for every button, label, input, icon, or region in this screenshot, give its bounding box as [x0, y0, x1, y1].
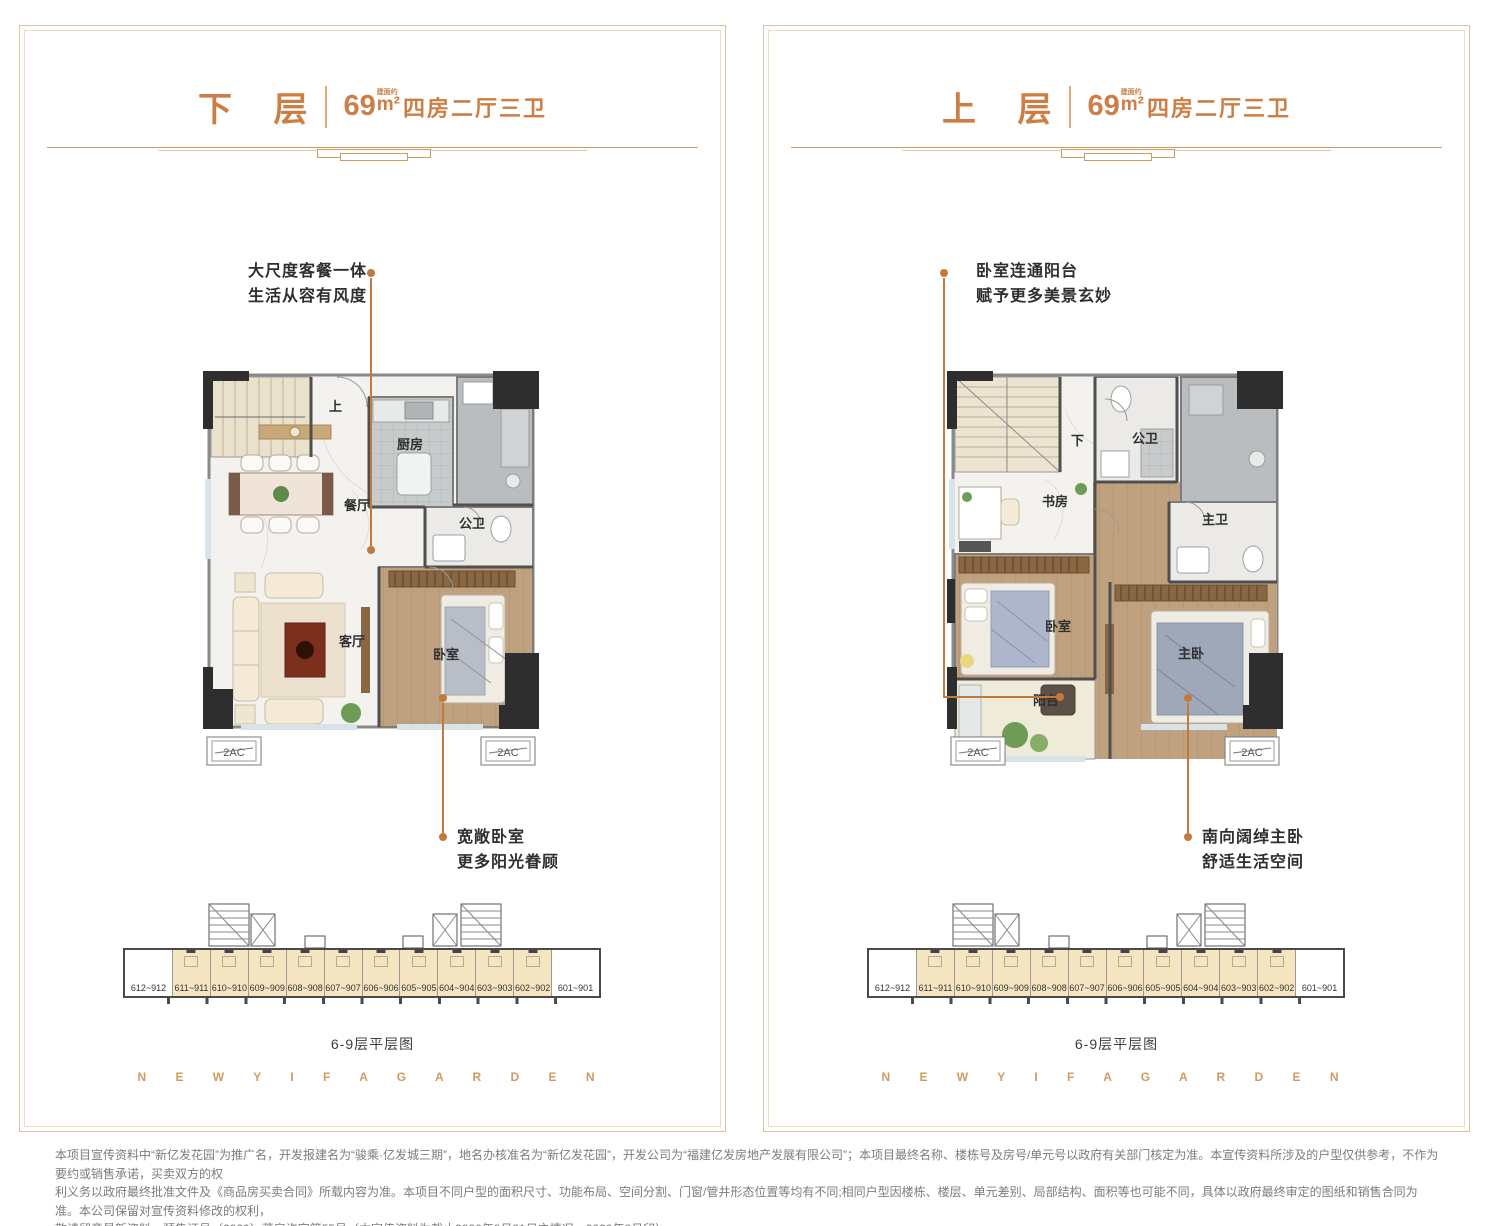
annotation-dining: 大尺度客餐一体 生活从容有风度	[248, 259, 367, 309]
unit-cell: 612~912	[125, 950, 172, 996]
annotation-dot	[439, 694, 447, 702]
unit-cell: 610~910	[954, 950, 992, 996]
header-divider	[325, 86, 327, 128]
unit-spec: 69 建面约m² 四房二厅三卫	[343, 90, 547, 123]
panel-header: 下 层 69 建面约m² 四房二厅三卫	[20, 82, 725, 131]
unit-cell: 603~903	[1219, 950, 1257, 996]
unit-cell: 609~909	[992, 950, 1030, 996]
unit-cell: 604~904	[437, 950, 475, 996]
disclaimer-line: 本项目宣传资料中“新亿发花园”为推广名，开发报建名为“骏乘·亿发城三期”，地名办…	[55, 1146, 1440, 1183]
ac-unit: 2AC	[1225, 737, 1279, 765]
room-label-master-bath: 主卫	[1202, 512, 1228, 527]
unit-cell: 606~906	[362, 950, 400, 996]
unit-spec: 69 建面约m² 四房二厅三卫	[1087, 90, 1291, 123]
ac-unit: 2AC	[481, 737, 535, 765]
unit-cell: 603~903	[475, 950, 513, 996]
unit-bar: 612~912 611~911 610~910 609~909 608~908 …	[867, 948, 1345, 998]
annotation-line	[370, 278, 372, 546]
annotation-master: 南向阔绰主卧 舒适生活空间	[1202, 825, 1304, 875]
unit-cell: 606~906	[1106, 950, 1144, 996]
layout-spec: 四房二厅三卫	[403, 91, 547, 123]
bedroom	[955, 554, 1095, 679]
upper-bath	[1095, 377, 1177, 482]
panel-lower-floor: 下 层 69 建面约m² 四房二厅三卫 大尺度客餐一体 生活从容有风度 宽敞卧室…	[19, 25, 726, 1132]
annotation-dot	[1056, 693, 1064, 701]
roof-bump	[1147, 936, 1167, 948]
annotation-dot	[1184, 833, 1192, 841]
unit-cell: 607~907	[324, 950, 362, 996]
brand-footer: N E W Y I F A G A R D E N	[20, 1070, 725, 1084]
unit-bar: 612~912 611~911 610~910 609~909 608~908 …	[123, 948, 601, 998]
ornamental-divider	[791, 147, 1442, 161]
roof-bump	[403, 936, 423, 948]
kitchen	[369, 397, 453, 507]
unit-cell: 602~902	[1257, 950, 1295, 996]
area-unit: 建面约m²	[377, 94, 400, 116]
annotation-line	[943, 696, 1057, 698]
ornamental-divider	[47, 147, 698, 161]
stair-tower	[953, 904, 1019, 946]
layout-spec: 四房二厅三卫	[1147, 91, 1291, 123]
disclaimer-line: 利义务以政府最终批准文件及《商品房买卖合同》所载内容为准。本项目不同户型的面积尺…	[55, 1183, 1440, 1220]
floorplan-sheet: 下 层 69 建面约m² 四房二厅三卫 大尺度客餐一体 生活从容有风度 宽敞卧室…	[0, 0, 1487, 1226]
plant	[1075, 483, 1087, 495]
room-label-bedroom: 卧室	[1045, 619, 1071, 634]
strip-caption: 6-9层平层图	[764, 1034, 1469, 1054]
unit-cell: 608~908	[286, 950, 324, 996]
disclaimer-line: 敬请留意最新资料。预售证号（2020）莆房许字第55号（本宣传资料为截止2020…	[55, 1220, 1440, 1226]
svg-text:2AC: 2AC	[967, 747, 988, 759]
stair-tower	[209, 904, 275, 946]
unit-cell: 608~908	[1030, 950, 1068, 996]
room-label-living: 客厅	[339, 634, 365, 649]
legal-disclaimer: 本项目宣传资料中“新亿发花园”为推广名，开发报建名为“骏乘·亿发城三期”，地名办…	[55, 1146, 1440, 1226]
svg-text:2AC: 2AC	[497, 747, 518, 759]
unit-cell: 612~912	[869, 950, 916, 996]
room-label-stair: 上	[329, 399, 342, 414]
annotation-balcony: 卧室连通阳台 赋予更多美景玄妙	[976, 259, 1112, 309]
unit-cell: 611~911	[172, 950, 210, 996]
room-label-bath: 公卫	[1132, 431, 1158, 446]
annotation-dot	[367, 269, 375, 277]
strip-caption: 6-9层平层图	[20, 1034, 725, 1054]
staircase	[211, 377, 311, 457]
unit-cell: 611~911	[916, 950, 954, 996]
unit-cell: 610~910	[210, 950, 248, 996]
room-label-dining: 餐厅	[343, 498, 370, 513]
floorplan-upper: 2AC 2AC 下 公卫 书房 主卫 卧室 主卧 阳台	[945, 369, 1285, 769]
unit-cell: 602~902	[513, 950, 551, 996]
unit-cell: 605~905	[1143, 950, 1181, 996]
room-label-bath: 公卫	[459, 516, 485, 531]
room-label-kitchen: 厨房	[397, 437, 423, 452]
area-note: 建面约	[1121, 87, 1142, 97]
annotation-line	[1187, 703, 1189, 833]
ac-unit: 2AC	[951, 737, 1005, 765]
building-cross-section: 612~912 611~911 610~910 609~909 608~908 …	[867, 902, 1345, 1004]
annotation-line	[442, 703, 444, 833]
floor-title: 上 层	[942, 82, 1067, 131]
header-divider	[1069, 86, 1071, 128]
area-note: 建面约	[377, 87, 398, 97]
roof-structures	[867, 902, 1345, 948]
roof-structures	[123, 902, 601, 948]
area-value: 69	[343, 90, 375, 123]
svg-text:2AC: 2AC	[223, 747, 244, 759]
annotation-dot	[940, 269, 948, 277]
strip-ticks	[167, 998, 557, 1004]
building-cross-section: 612~912 611~911 610~910 609~909 608~908 …	[123, 902, 601, 1004]
annotation-line	[943, 278, 945, 696]
stair-tower	[1177, 904, 1245, 946]
strip-ticks	[911, 998, 1301, 1004]
room-label-study: 书房	[1042, 494, 1068, 509]
roof-bump	[1049, 936, 1069, 948]
room-label-stair: 下	[1071, 433, 1084, 448]
annotation-dot	[367, 546, 375, 554]
annotation-dot	[1184, 694, 1192, 702]
unit-cell: 607~907	[1068, 950, 1106, 996]
room-label-bedroom: 卧室	[433, 647, 459, 662]
panel-header: 上 层 69 建面约m² 四房二厅三卫	[764, 82, 1469, 131]
annotation-dot	[439, 833, 447, 841]
annotation-bedroom: 宽敞卧室 更多阳光眷顾	[457, 825, 559, 875]
floor-title: 下 层	[198, 82, 323, 131]
room-label-master-bedroom: 主卧	[1178, 646, 1204, 661]
unit-cell: 601~901	[551, 950, 599, 996]
svg-text:2AC: 2AC	[1241, 747, 1262, 759]
area-unit: 建面约m²	[1121, 94, 1144, 116]
stair-tower	[433, 904, 501, 946]
unit-cell: 601~901	[1295, 950, 1343, 996]
unit-cell: 609~909	[248, 950, 286, 996]
brand-footer: N E W Y I F A G A R D E N	[764, 1070, 1469, 1084]
area-value: 69	[1087, 90, 1119, 123]
unit-cell: 605~905	[399, 950, 437, 996]
ac-unit: 2AC	[207, 737, 261, 765]
roof-bump	[305, 936, 325, 948]
staircase	[955, 377, 1060, 472]
panel-upper-floor: 上 层 69 建面约m² 四房二厅三卫 卧室连通阳台 赋予更多美景玄妙 南向阔绰…	[763, 25, 1470, 1132]
unit-cell: 604~904	[1181, 950, 1219, 996]
